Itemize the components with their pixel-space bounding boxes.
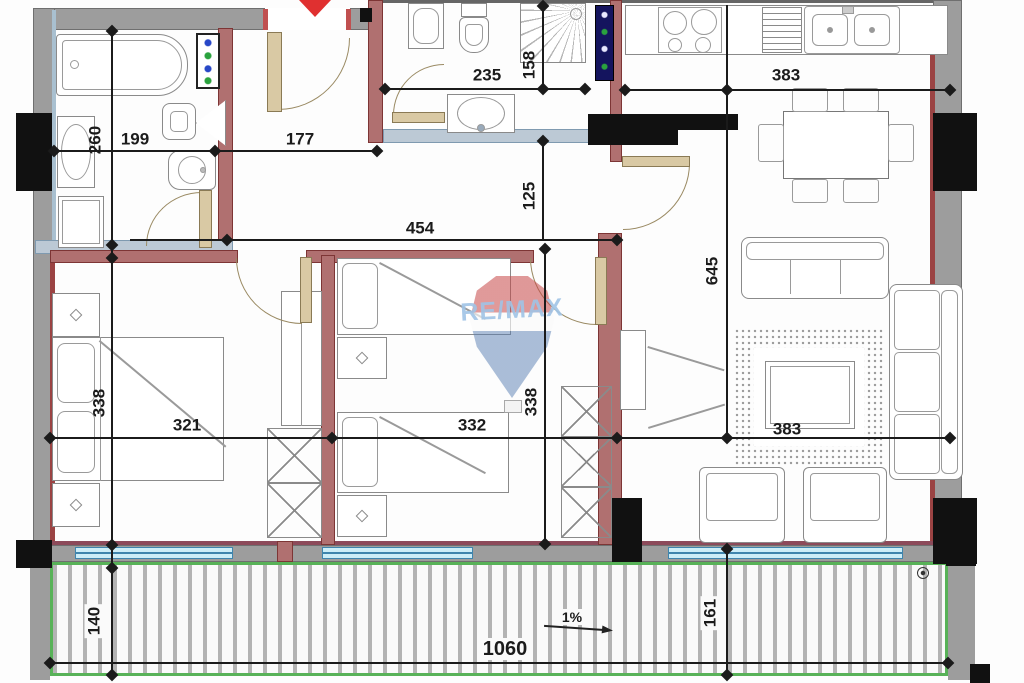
hall-radiator-icon [595,5,614,81]
armchair-1-seat [706,473,778,521]
dim-line-living-h [726,5,728,438]
tv-unit [620,330,646,410]
watermark-basket-icon [504,400,522,413]
kitchen-drawers [762,7,802,53]
wardrobe-x-2 [561,386,612,538]
dim-shower-depth: 158 [521,51,538,79]
bathroom-cabinet-door [62,200,100,244]
sink-tap [842,6,854,14]
dim-bathroom-width: 199 [121,131,149,148]
armchair-2-seat [810,473,880,521]
burner-4 [695,37,711,53]
slope-label: 1% [559,609,585,625]
dining-chair-3 [792,179,828,203]
wall-notch-entry [360,8,372,22]
dim-kitchen-width: 383 [772,67,800,84]
toilet-corner-tank [196,100,226,146]
dim-hall-width: 177 [286,131,314,148]
dim-bedroom2-width: 332 [458,417,486,434]
washbasin2-bowl [413,8,439,44]
dining-chair-1 [792,88,828,112]
window-bedroom2 [322,547,473,559]
sofa-top-back [746,242,884,260]
balcony-corner-block [970,664,990,683]
dining-table [783,111,889,179]
dim-bedroom2-height: 338 [523,388,540,416]
wall-bedroom-divider [321,255,335,545]
entry-door [267,32,282,112]
sofa-right-cushion1 [894,290,940,350]
bedroom1-door [300,257,312,323]
dim-terrace-depth-left: 140 [85,604,104,638]
dim-marker [371,145,384,158]
bedroom2-door [595,257,607,325]
dining-chair-6 [888,124,914,162]
dim-line-shower [542,5,544,89]
dim-bathroom2-width: 235 [473,67,501,84]
burner-3 [668,38,682,52]
bathtub-drain [70,60,79,69]
floor-plan: RE/MAX 260 199 177 235 158 383 125 454 [0,0,1024,683]
tv-cone-lower [648,404,725,429]
dining-chair-4 [843,179,879,203]
dim-terrace-depth-right: 161 [701,596,720,630]
sofa-right-back [941,290,958,474]
bed-pillow-2 [57,411,95,473]
dim-living-height: 645 [704,257,721,285]
sink-drain-left [827,27,833,33]
bathtub-inner [62,40,182,90]
toilet-bowl-inner [170,111,188,132]
wall-window-divider [277,541,293,562]
window-living [668,547,903,559]
window-bedroom1 [75,547,233,559]
dim-line-bath2 [385,88,585,90]
sofa-right-cushion2 [894,352,940,412]
towel-radiator-icon [196,33,220,89]
duct-shaft [588,114,678,145]
pillar-left [16,113,52,191]
dim-line-corridor-h [542,140,544,240]
single-bed-a-pillow [342,263,378,329]
sofa-right-cushion3 [894,414,940,474]
dim-line-kitchen [625,89,950,91]
living-door-swing [623,163,690,230]
tv-cone-upper [648,346,725,371]
wall-corridor-bed1 [50,250,238,263]
watermark-brand: RE/MAX [451,293,572,328]
dim-marker [721,84,734,97]
shower-head-icon [570,8,582,20]
balcony-drain-icon [917,567,929,579]
entrance-marker-icon [299,0,331,17]
dining-chair-5 [758,124,784,162]
dim-marker [537,83,550,96]
entry-jamb-left [263,9,268,30]
pillar-bottom-left [16,540,52,568]
dim-marker [721,432,734,445]
pillar-right-top [933,113,977,191]
burner-1 [663,11,687,35]
dim-bedroom1-width: 321 [173,417,201,434]
bedroom1-door-swing [236,258,302,324]
sofa-top-divider2 [840,260,841,294]
bath2-door [392,112,445,123]
entry-jamb-right [346,9,351,30]
toilet2-tank [461,3,487,17]
dim-living-width: 383 [773,421,801,438]
dim-bathroom-height: 260 [87,126,104,154]
coffee-table-inner [770,366,850,424]
dim-line-left-chain [111,30,113,676]
entry-door-swing [278,38,350,110]
dim-line-corridor [130,239,618,241]
dim-corridor-height: 125 [521,182,538,210]
dim-marker [539,243,552,256]
duct-shaft-extension [676,114,738,130]
dining-chair-2 [843,88,879,112]
wardrobe-x-1 [267,428,322,538]
burner-2 [691,9,717,35]
pillar-living-corner [612,498,642,562]
dim-bedroom1-height: 338 [91,389,108,417]
pillar-bottom-right [946,540,976,566]
bidet-tap [200,167,206,173]
sink-drain-right [869,27,875,33]
sofa-top-divider1 [790,260,791,294]
dim-line-terrace-right [726,548,728,676]
dim-corridor-width: 454 [406,220,434,237]
dim-line-bedroom2-h [544,248,546,545]
bath1-door-swing [146,192,202,246]
wall-top-left-segment [33,8,265,30]
dim-line-rooms [50,437,950,439]
single-bed-b-pillow [342,417,378,487]
dim-line-terrace [50,662,948,664]
living-door [622,156,690,167]
slope-arrow-head [602,625,614,634]
dim-terrace-length: 1060 [480,638,531,660]
toilet2-bowl-inner [465,24,483,46]
vanity-tap [477,124,485,132]
dim-marker [579,83,592,96]
